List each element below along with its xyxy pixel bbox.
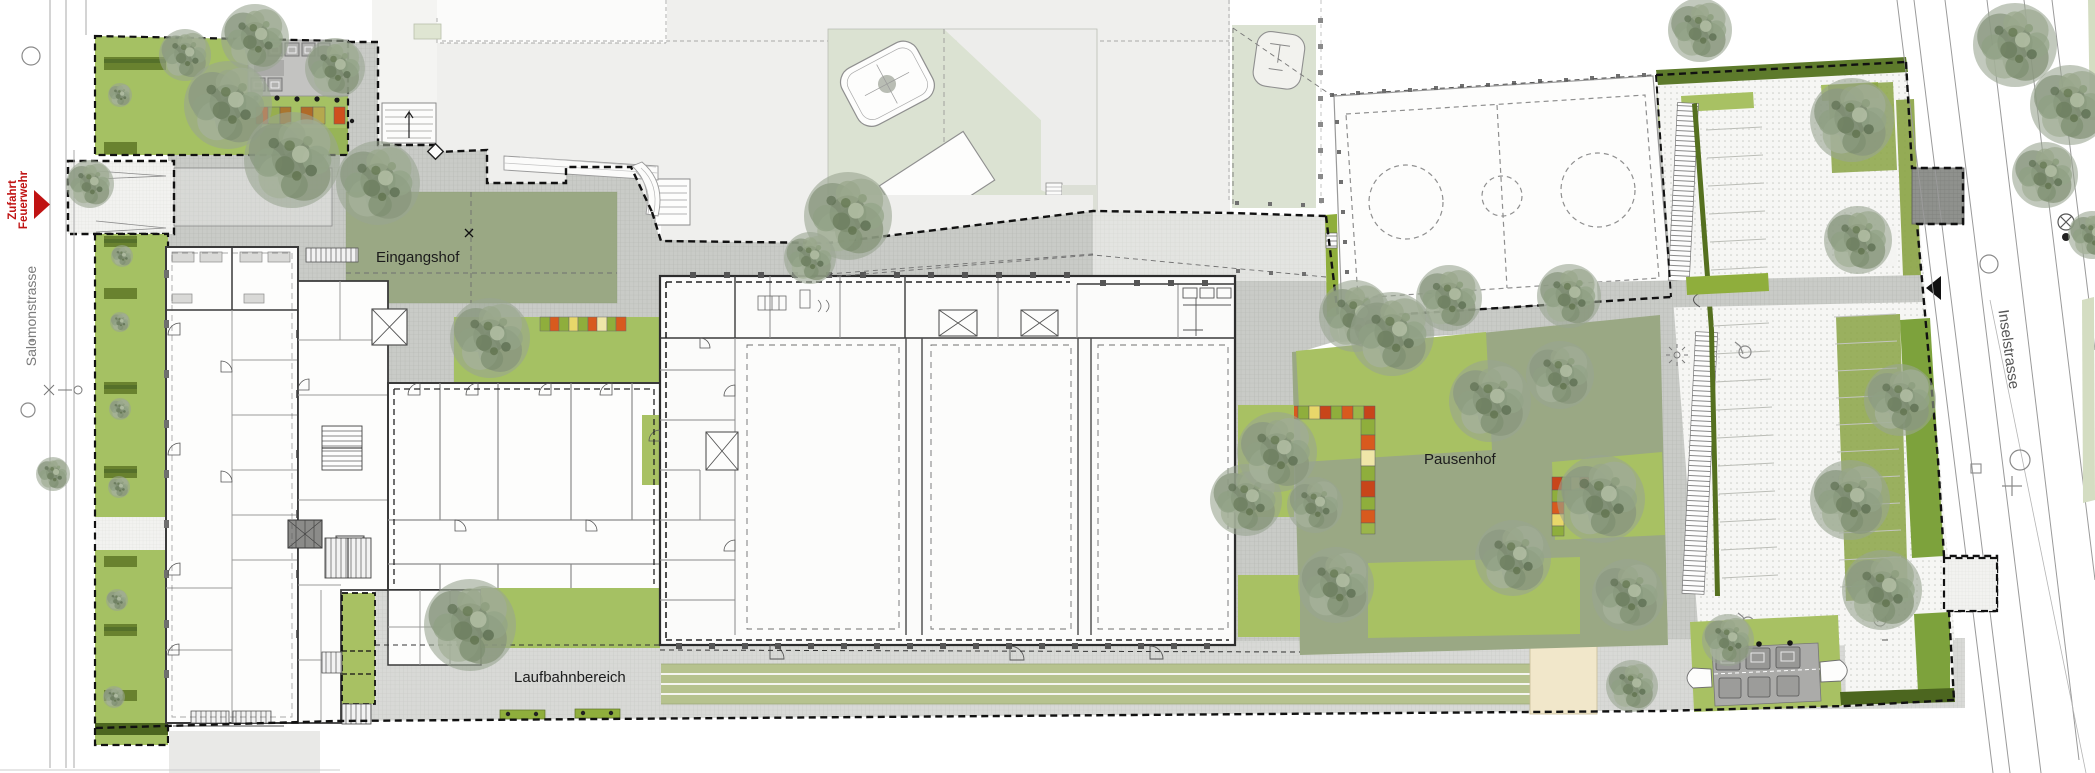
svg-text:Salomonstrasse: Salomonstrasse (23, 266, 39, 367)
svg-text:Eingangshof: Eingangshof (376, 249, 460, 266)
svg-text:Pausenhof: Pausenhof (1424, 451, 1497, 468)
svg-text:Laufbahnbereich: Laufbahnbereich (514, 669, 626, 686)
svg-text:Feuerwehr: Feuerwehr (18, 170, 30, 229)
